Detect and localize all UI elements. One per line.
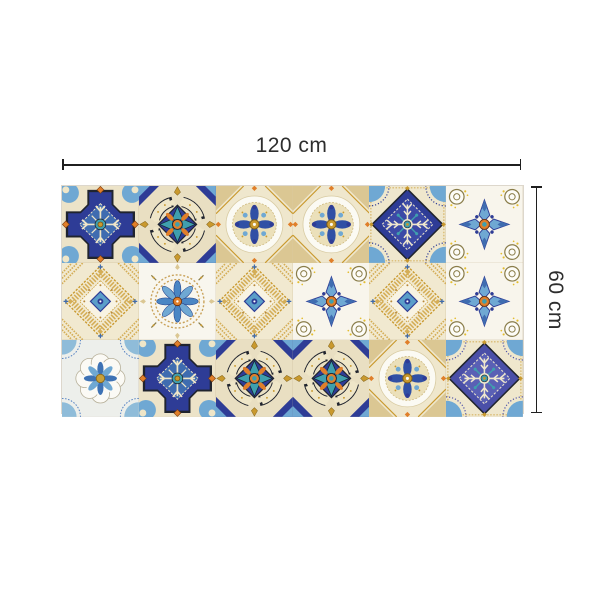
tile-flower-scroll-teal xyxy=(216,340,293,417)
tile-flower-cross-white xyxy=(446,186,523,263)
height-dimension: 60 cm xyxy=(541,186,569,413)
tile-lace-diamond xyxy=(369,263,446,340)
width-tick-left xyxy=(62,159,64,170)
width-dimension-line xyxy=(62,164,521,166)
tile-flower-scroll-teal xyxy=(293,340,370,417)
height-dimension-line xyxy=(536,186,538,413)
tile-ornate-diamond-violet xyxy=(446,340,523,417)
tile-flower-cross-white xyxy=(446,263,523,340)
tile-stepped-diamond xyxy=(62,186,139,263)
tile-flower-cross-white xyxy=(293,263,370,340)
tile-flower-scroll-teal xyxy=(139,186,216,263)
height-dimension-label: 60 cm xyxy=(543,270,567,330)
tile-medallion-circle xyxy=(369,340,446,417)
tile-rosette xyxy=(62,340,139,417)
tile-ornate-diamond-navy xyxy=(369,186,446,263)
product-dimension-diagram: 120 cm 60 cm xyxy=(0,0,600,600)
tile-medallion-circle xyxy=(216,186,293,263)
width-dimension-label: 120 cm xyxy=(62,134,521,158)
tile-lace-circle-flower xyxy=(139,263,216,340)
tile-lace-diamond xyxy=(62,263,139,340)
width-tick-right xyxy=(520,159,522,170)
rug-image xyxy=(62,186,523,413)
tile-medallion-circle xyxy=(293,186,370,263)
tile-lace-diamond xyxy=(216,263,293,340)
tile-stepped-diamond xyxy=(139,340,216,417)
